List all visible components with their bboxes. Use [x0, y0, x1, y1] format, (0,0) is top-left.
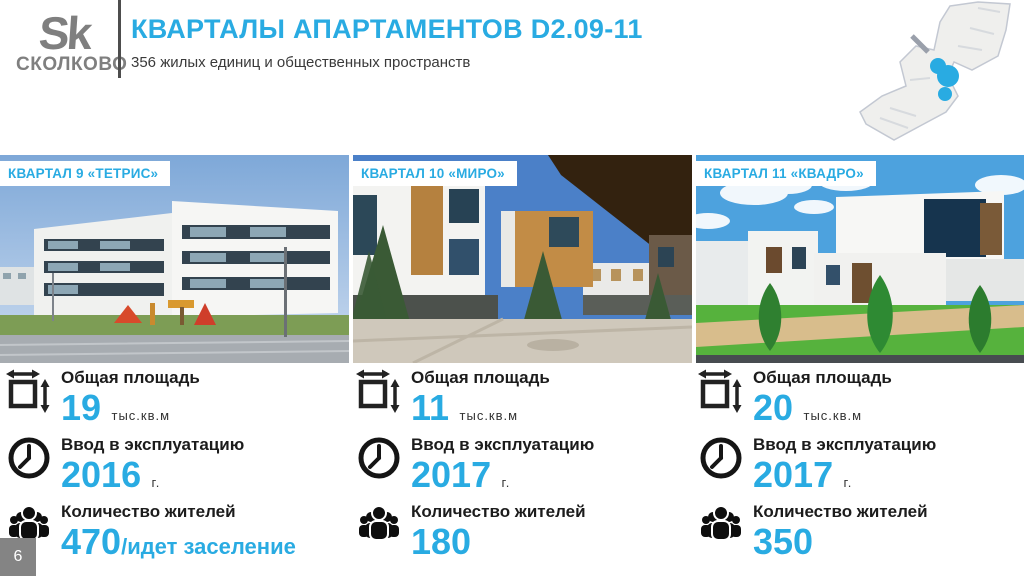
stat-year-value: 2016 — [61, 454, 141, 495]
photo-quarter-10-miro: КВАРТАЛ 10 «МИРО» — [353, 155, 692, 363]
stat-residents: Количество жителей 180 — [356, 500, 696, 562]
stat-commissioning-label: Ввод в эксплуатацию — [411, 433, 696, 455]
quarter-label-kvadro: КВАРТАЛ 11 «КВАДРО» — [696, 161, 876, 186]
stat-area: Общая площадь 20 тыс.кв.м — [698, 366, 1024, 428]
stat-year-value: 2017 — [753, 454, 833, 495]
skolkovo-logo-mark: Sk — [37, 10, 90, 56]
stats-column-quarter-9: Общая площадь 19 тыс.кв.м Ввод в эксплуа… — [6, 366, 346, 567]
skolkovo-map-outline — [850, 0, 1022, 146]
stat-commissioning: Ввод в эксплуатацию 2016 г. — [6, 433, 346, 495]
stat-residents-label: Количество жителей — [61, 500, 346, 522]
stat-area-value: 20 — [753, 387, 793, 428]
page-subtitle: 356 жилых единиц и общественных простран… — [131, 54, 470, 71]
photo-quarter-11-kvadro: КВАРТАЛ 11 «КВАДРО» — [696, 155, 1024, 363]
stat-commissioning: Ввод в эксплуатацию 2017 г. — [356, 433, 696, 495]
stat-year-unit: г. — [502, 475, 511, 490]
stat-area: Общая площадь 19 тыс.кв.м — [6, 366, 346, 428]
skolkovo-logo: Sk СКОЛКОВО — [16, 10, 112, 76]
stat-area-label: Общая площадь — [61, 366, 346, 388]
map-dot-quarter-11 — [938, 87, 952, 101]
people-group-icon — [698, 502, 744, 548]
area-resize-icon — [6, 368, 52, 414]
stat-area-unit: тыс.кв.м — [804, 408, 863, 423]
stat-year-value: 2017 — [411, 454, 491, 495]
stats-column-quarter-11: Общая площадь 20 тыс.кв.м Ввод в эксплуа… — [698, 366, 1024, 567]
stat-year-unit: г. — [152, 475, 161, 490]
stat-area: Общая площадь 11 тыс.кв.м — [356, 366, 696, 428]
stat-residents-value: 350 — [753, 521, 813, 562]
stat-commissioning-label: Ввод в эксплуатацию — [753, 433, 1024, 455]
stat-commissioning-label: Ввод в эксплуатацию — [61, 433, 346, 455]
header-divider — [118, 0, 121, 78]
stat-residents-label: Количество жителей — [753, 500, 1024, 522]
photo-quarter-9-tetris: КВАРТАЛ 9 «ТЕТРИС» — [0, 155, 349, 363]
stat-area-unit: тыс.кв.м — [460, 408, 519, 423]
stat-residents-note: /идет заселение — [121, 534, 296, 559]
clock-icon — [356, 435, 402, 481]
quarter-label-miro: КВАРТАЛ 10 «МИРО» — [353, 161, 517, 186]
stat-commissioning: Ввод в эксплуатацию 2017 г. — [698, 433, 1024, 495]
stat-residents-value: 470 — [61, 521, 121, 562]
photo-miro-scene — [353, 155, 692, 363]
stat-residents-value: 180 — [411, 521, 471, 562]
map-dot-quarter-9 — [937, 65, 959, 87]
area-resize-icon — [356, 368, 402, 414]
skolkovo-map-locator-icon — [850, 0, 1022, 146]
page-number-badge: 6 — [0, 538, 36, 576]
stat-residents: Количество жителей 350 — [698, 500, 1024, 562]
page-title: КВАРТАЛЫ АПАРТАМЕНТОВ D2.09-11 — [131, 14, 643, 45]
people-group-icon — [356, 502, 402, 548]
photo-kvadro-scene — [696, 155, 1024, 363]
photo-tetris-scene — [0, 155, 349, 363]
stats-column-quarter-10: Общая площадь 11 тыс.кв.м Ввод в эксплуа… — [356, 366, 696, 567]
stat-area-value: 11 — [411, 387, 449, 428]
quarter-label-tetris: КВАРТАЛ 9 «ТЕТРИС» — [0, 161, 170, 186]
stat-area-label: Общая площадь — [753, 366, 1024, 388]
stat-residents-label: Количество жителей — [411, 500, 696, 522]
stat-year-unit: г. — [844, 475, 853, 490]
stat-area-unit: тыс.кв.м — [112, 408, 171, 423]
stat-area-value: 19 — [61, 387, 101, 428]
area-resize-icon — [698, 368, 744, 414]
clock-icon — [698, 435, 744, 481]
stat-area-label: Общая площадь — [411, 366, 696, 388]
stat-residents: Количество жителей 470/идет заселение — [6, 500, 346, 562]
clock-icon — [6, 435, 52, 481]
